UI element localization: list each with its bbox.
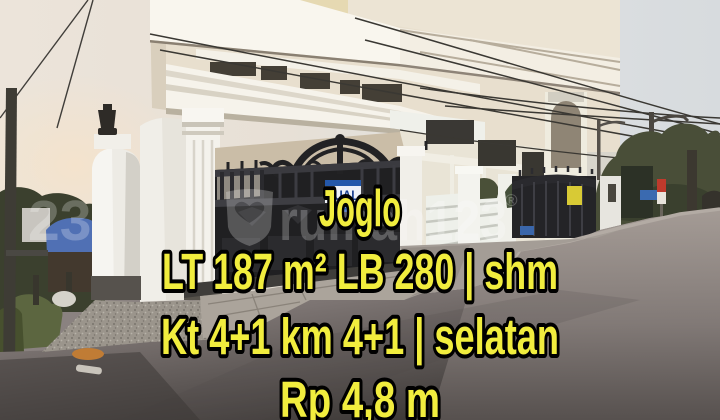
svg-text:Joglo: Joglo	[319, 180, 401, 238]
svg-text:Rp 4,8 m: Rp 4,8 m	[280, 371, 440, 420]
svg-text:23: 23	[28, 189, 91, 253]
svg-text:Kt 4+1 km 4+1 | selatan: Kt 4+1 km 4+1 | selatan	[161, 308, 559, 366]
svg-text:LT 187 m² LB 280 | shm: LT 187 m² LB 280 | shm	[162, 243, 558, 301]
svg-text:®: ®	[505, 191, 518, 210]
